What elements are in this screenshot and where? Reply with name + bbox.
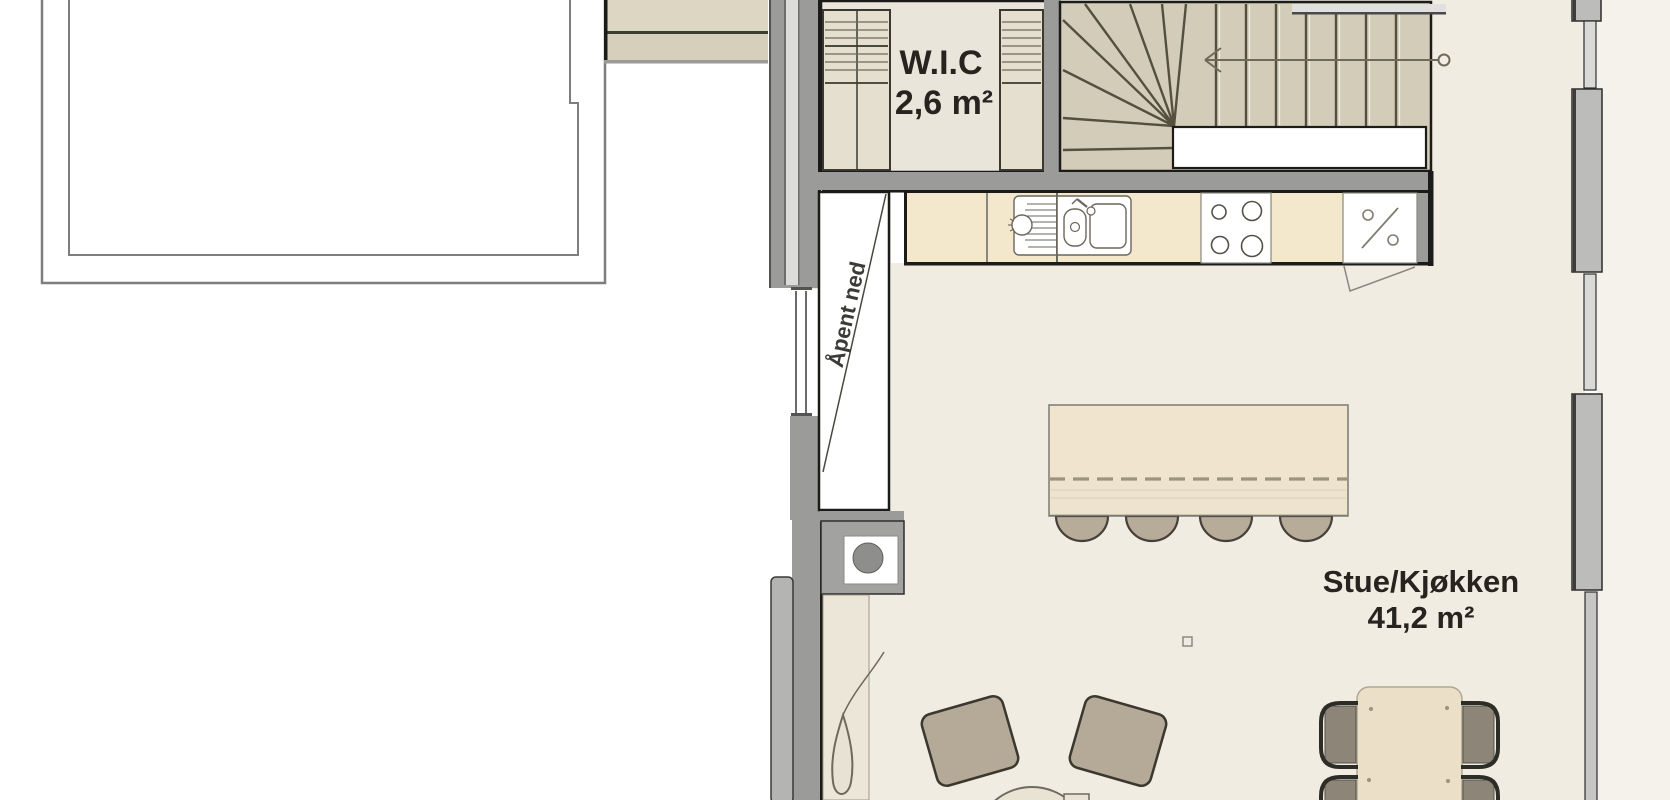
svg-text:Stue/Kjøkken: Stue/Kjøkken bbox=[1323, 564, 1519, 599]
svg-text:W.I.C: W.I.C bbox=[899, 44, 982, 82]
svg-text:41,2 m²: 41,2 m² bbox=[1368, 600, 1475, 635]
svg-text:2,6 m²: 2,6 m² bbox=[895, 84, 993, 122]
